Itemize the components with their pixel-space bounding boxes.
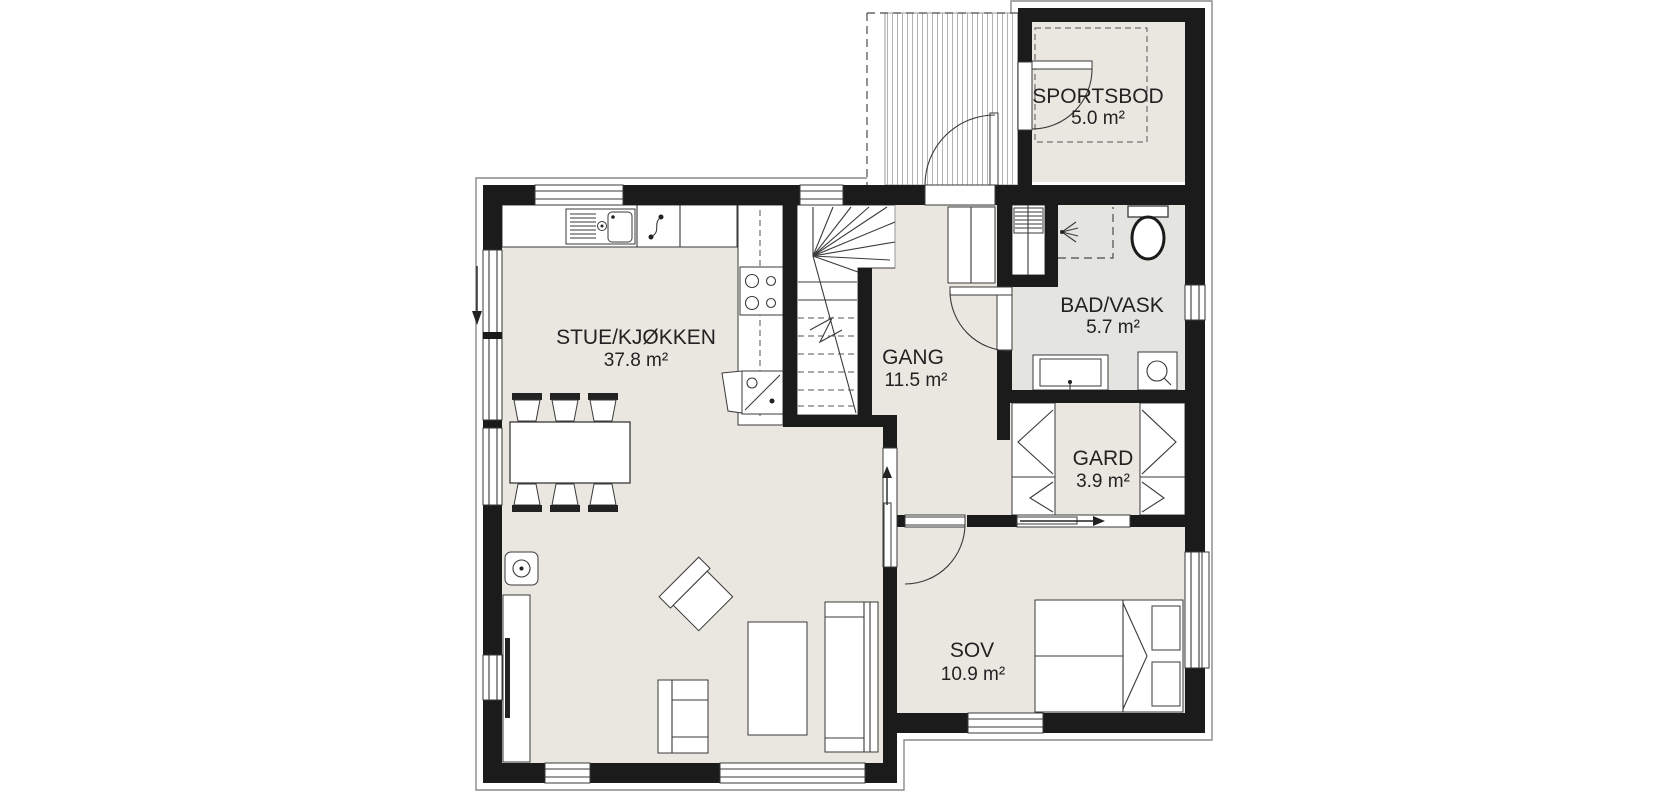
room-label-bad: BAD/VASK [1060, 294, 1163, 317]
kitchen-sink-icon [566, 209, 635, 244]
wardrobe-closet [1012, 403, 1055, 515]
window [483, 250, 502, 420]
room-label-stue: STUE/KJØKKEN [556, 326, 716, 349]
wood-stove-icon [505, 552, 538, 585]
window [1185, 285, 1205, 320]
room-label-gard: GARD [1073, 447, 1134, 470]
sliding-door-gard [1017, 515, 1130, 527]
window [535, 185, 623, 205]
sliding-door-living [882, 448, 897, 567]
window [545, 763, 590, 783]
vanity-sink [1033, 355, 1108, 390]
toilet-icon [1128, 206, 1168, 259]
room-area-sov: 10.9 m² [941, 664, 1005, 685]
room-area-stue: 37.8 m² [604, 350, 668, 371]
window [968, 713, 1043, 733]
entry-cabinet [948, 207, 995, 283]
room-area-gang: 11.5 m² [884, 370, 947, 391]
tv-icon [505, 638, 510, 718]
vent-unit [1012, 205, 1045, 275]
cooktop-icon [740, 267, 783, 315]
double-bed [1035, 600, 1183, 712]
room-label-sportsbod: SPORTSBOD [1032, 85, 1163, 108]
pillow [1152, 606, 1180, 650]
room-area-bad: 5.7 m² [1086, 317, 1140, 338]
wardrobe-closet [1140, 403, 1185, 515]
coffee-table [748, 622, 807, 735]
floorplan-page: SPORTSBOD 5.0 m² STUE/KJØKKEN 37.8 m² GA… [0, 0, 1670, 800]
room-area-sportsbod: 5.0 m² [1071, 108, 1125, 129]
floorplan-canvas: SPORTSBOD 5.0 m² STUE/KJØKKEN 37.8 m² GA… [0, 0, 1670, 800]
sofa [825, 602, 878, 752]
window [1185, 552, 1209, 668]
facade-arrow [472, 266, 482, 325]
armchair [658, 680, 708, 753]
room-area-gard: 3.9 m² [1076, 471, 1130, 492]
room-label-sov: SOV [950, 639, 994, 662]
window [720, 763, 865, 783]
washing-machine-icon [1138, 352, 1177, 390]
dishwasher-icon [722, 371, 783, 414]
dining-table [510, 422, 630, 483]
window [800, 185, 843, 205]
window [483, 655, 502, 700]
window [483, 428, 502, 505]
tv-bench [503, 595, 530, 762]
room-label-gang: GANG [882, 346, 944, 369]
pillow [1152, 662, 1180, 706]
